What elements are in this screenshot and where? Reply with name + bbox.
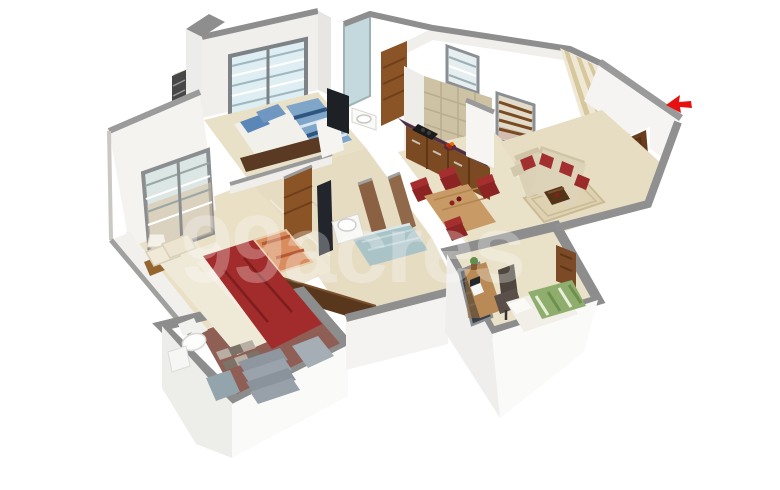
floor-plan-image: 99acres [0, 0, 780, 490]
upper-washbasin [352, 108, 376, 130]
watermark-text: 99acres [180, 196, 524, 303]
wash-slatted-door [381, 41, 407, 126]
floor-plan-svg: 99acres [0, 0, 780, 490]
wash-glass-panel [344, 14, 370, 108]
kitchen-column [466, 100, 494, 168]
tv-screen [327, 88, 349, 134]
bedroom2-right-pillar [318, 11, 331, 96]
